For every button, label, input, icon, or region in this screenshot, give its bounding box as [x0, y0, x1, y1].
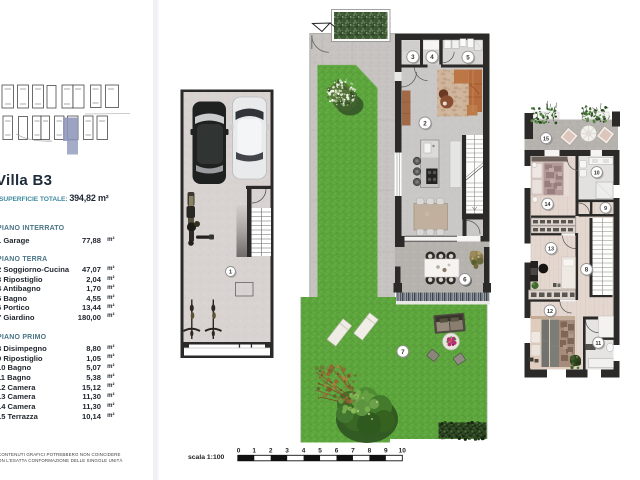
svg-text:0: 0 — [237, 448, 241, 455]
svg-text:1: 1 — [252, 448, 256, 455]
svg-text:2: 2 — [423, 121, 427, 128]
svg-text:9: 9 — [604, 206, 607, 212]
svg-text:3: 3 — [411, 54, 415, 61]
svg-text:14: 14 — [545, 202, 551, 208]
svg-text:4: 4 — [302, 448, 306, 455]
svg-text:7: 7 — [401, 349, 405, 356]
svg-text:13: 13 — [548, 247, 554, 253]
svg-text:5: 5 — [318, 448, 322, 455]
svg-text:7: 7 — [351, 448, 355, 455]
svg-text:10: 10 — [594, 171, 600, 177]
svg-text:5: 5 — [466, 55, 470, 62]
svg-text:10: 10 — [399, 448, 407, 455]
svg-text:6: 6 — [335, 448, 339, 455]
svg-text:15: 15 — [543, 136, 549, 142]
svg-text:3: 3 — [285, 448, 289, 455]
svg-text:scala 1:100: scala 1:100 — [188, 454, 225, 461]
svg-text:1: 1 — [229, 270, 232, 276]
svg-text:8: 8 — [585, 267, 589, 274]
svg-text:2: 2 — [269, 448, 273, 455]
svg-text:12: 12 — [547, 309, 553, 315]
svg-text:11: 11 — [595, 341, 601, 347]
svg-text:6: 6 — [463, 277, 467, 284]
svg-text:4: 4 — [430, 54, 434, 61]
svg-text:8: 8 — [368, 448, 372, 455]
svg-text:9: 9 — [384, 448, 388, 455]
